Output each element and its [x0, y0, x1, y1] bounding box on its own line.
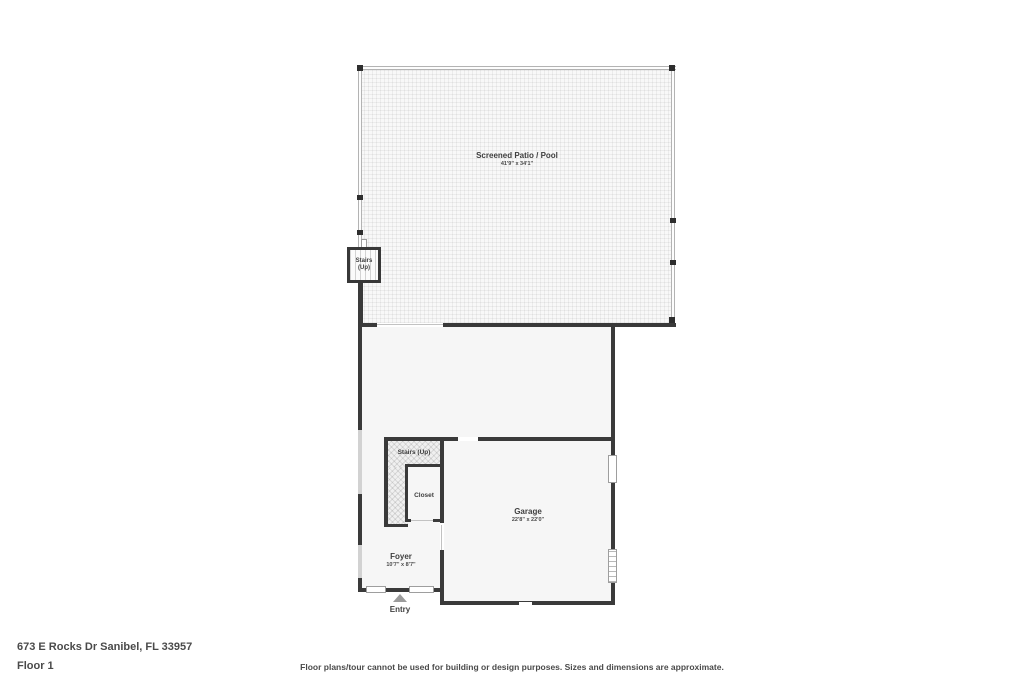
patio-room-name: Screened Patio / Pool [437, 151, 597, 161]
right-wall-door [608, 549, 617, 583]
patio-label-block: Screened Patio / Pool 41'9" x 34'1" [437, 151, 597, 168]
patio-post [670, 260, 676, 265]
patio-screen-wall-left [358, 66, 362, 247]
patio-post [670, 218, 676, 223]
garage-room-dims: 22'8" x 22'0" [468, 517, 588, 524]
patio-left-lower-wall [358, 282, 363, 327]
patio-screen-wall-top [358, 66, 676, 70]
patio-opening [377, 324, 443, 325]
stairs-bottom-wall [384, 524, 408, 527]
entry-label: Entry [380, 605, 420, 615]
interior-top-wall-right [478, 437, 615, 441]
patio-area [360, 69, 672, 323]
patio-stairs-label: Stairs (Up) [356, 258, 373, 272]
foyer-room-name: Foyer [361, 552, 441, 562]
patio-stairs-label-line2: (Up) [358, 265, 370, 271]
floor-plan-page: Screened Patio / Pool 41'9" x 34'1" Stai… [0, 0, 1024, 682]
patio-stairs-box: Stairs (Up) [347, 247, 381, 283]
entry-arrow-icon [393, 594, 407, 602]
under-house-area [362, 327, 611, 437]
closet-door-opening [411, 520, 433, 521]
property-address: 673 E Rocks Dr Sanibel, FL 33957 [17, 641, 192, 653]
garage-bottom-notch [519, 602, 532, 605]
closet-label: Closet [406, 492, 442, 500]
closet-bottom-stub-right [433, 519, 440, 522]
stairs-label: Stairs (Up) [386, 449, 442, 457]
garage-room-name: Garage [468, 507, 588, 517]
left-wall-window [358, 430, 362, 494]
patio-screen-wall-right [671, 66, 675, 323]
patio-stairs-label-line1: Stairs [356, 258, 373, 264]
disclaimer-text: Floor plans/tour cannot be used for buil… [0, 662, 1024, 672]
patio-post [357, 65, 363, 71]
patio-room-dims: 41'9" x 34'1" [437, 161, 597, 168]
garage-label-block: Garage 22'8" x 22'0" [468, 507, 588, 524]
foyer-window [409, 586, 434, 593]
foyer-window [366, 586, 386, 593]
patio-post [357, 230, 363, 235]
right-wall-window [608, 455, 617, 483]
foyer-room-dims: 10'7" x 8'7" [361, 562, 441, 569]
garage-door-opening [441, 525, 442, 550]
patio-post [669, 65, 675, 71]
foyer-label-block: Foyer 10'7" x 8'7" [361, 552, 441, 569]
patio-post [357, 195, 363, 200]
